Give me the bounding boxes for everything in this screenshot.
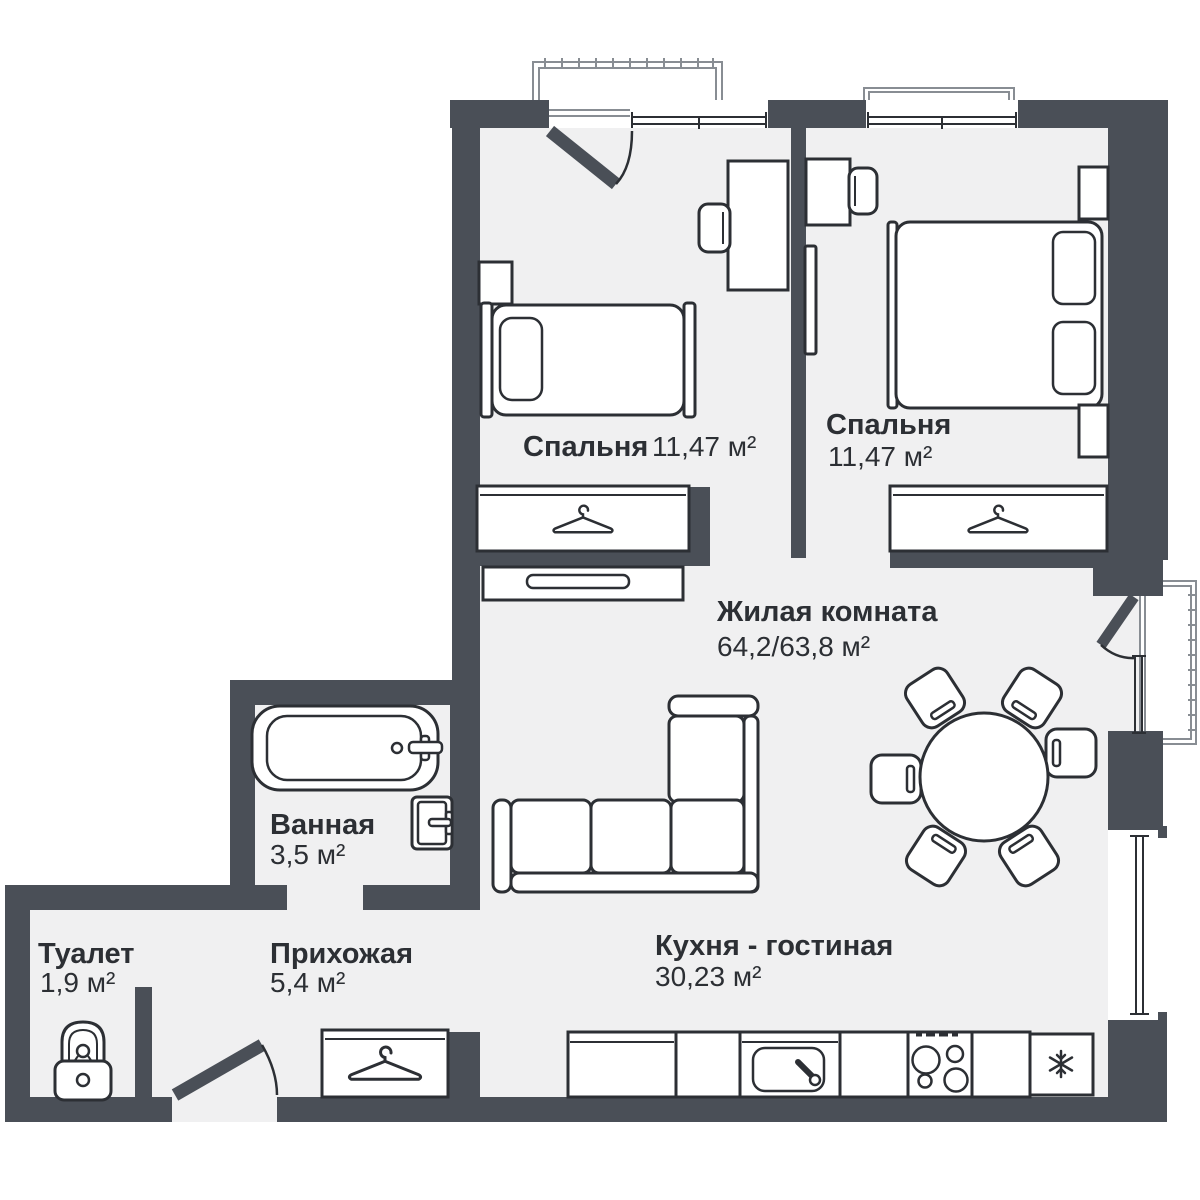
kitchen-living-area: 30,23 м² — [655, 961, 761, 992]
burner-icon — [945, 1069, 968, 1092]
window-bedroom-2 — [866, 100, 1018, 129]
wall-bathroom-bottom-left — [230, 885, 287, 910]
wall-right-mid — [1108, 731, 1163, 830]
bedroom-1-name: Спальня — [523, 431, 648, 463]
wall-bedroom1-left — [452, 100, 480, 705]
entrance-doorway-floor — [172, 1097, 277, 1122]
wall-bathroom-top — [230, 680, 480, 705]
wall-right-upper — [1108, 128, 1168, 560]
wall-bathroom-right — [450, 680, 480, 910]
fridge — [1030, 1034, 1093, 1095]
wardrobe — [322, 1030, 448, 1097]
floor-plan-page: Спальня 11,47 м² Спальня 11,47 м² Жилая … — [0, 0, 1200, 1200]
kitchen-living-name: Кухня - гостиная — [655, 930, 893, 962]
wardrobe — [477, 486, 689, 551]
floor-plan: Спальня 11,47 м² Спальня 11,47 м² Жилая … — [0, 0, 1200, 1200]
double-bed — [888, 222, 1102, 408]
dining-chair — [1046, 729, 1096, 777]
kitchen-sink-unit — [740, 1032, 840, 1097]
kitchen-cabinet — [840, 1032, 908, 1097]
hallway-name: Прихожая — [270, 938, 413, 970]
nightstand — [1079, 167, 1108, 219]
tv-stand — [483, 567, 683, 600]
kitchen-cabinet — [676, 1032, 740, 1097]
wall-bedroom2-bottom — [890, 550, 1108, 568]
toilet-name: Туалет — [38, 938, 134, 970]
desk-chair — [699, 204, 730, 252]
bedroom-2-area: 11,47 м² — [828, 441, 932, 472]
wall-top-2 — [768, 100, 866, 128]
burner-icon — [947, 1046, 963, 1062]
hallway-area: 5,4 м² — [270, 967, 345, 998]
pillow — [1053, 322, 1095, 394]
living-room-name: Жилая комната — [716, 596, 938, 628]
nightstand — [479, 262, 512, 304]
bathroom-name: Ванная — [270, 809, 375, 841]
balcony-right — [1140, 581, 1197, 744]
stove — [908, 1032, 972, 1097]
wall-toilet-left — [5, 885, 30, 1122]
living-room-area: 64,2/63,8 м² — [717, 631, 870, 662]
window-bedroom-1 — [630, 100, 768, 129]
kitchen-cabinet — [972, 1032, 1030, 1097]
wall-tv-icon — [805, 246, 816, 354]
wall-top-3 — [1018, 100, 1168, 128]
kitchen-cabinet — [568, 1032, 676, 1097]
desk — [728, 161, 788, 290]
toilet-furniture — [55, 1022, 111, 1100]
kitchen-furniture — [568, 1032, 1093, 1097]
bathroom-area: 3,5 м² — [270, 839, 345, 870]
bathtub — [252, 706, 442, 790]
desk — [806, 159, 850, 225]
tv-icon — [527, 575, 629, 588]
hallway-furniture — [322, 1030, 448, 1097]
bedroom-2-name: Спальня — [826, 409, 951, 441]
bedroom-1-area: 11,47 м² — [652, 431, 756, 462]
wardrobe — [890, 486, 1107, 551]
bathroom-door-icon — [412, 797, 452, 849]
single-bed — [481, 303, 695, 417]
pillow — [1053, 232, 1095, 304]
burner-icon — [919, 1075, 932, 1088]
wall-bathroom-bottom-right — [363, 885, 480, 910]
pillow — [500, 318, 542, 400]
bathroom-doorway-floor — [287, 885, 363, 910]
dining-table — [920, 713, 1048, 841]
burner-icon — [913, 1047, 940, 1074]
wall-toilet-top — [5, 885, 230, 910]
wall-bottom — [277, 1097, 1167, 1122]
wall-bathroom-left — [230, 680, 255, 910]
window-kitchen — [1108, 826, 1167, 1024]
wall-toilet-partition — [135, 987, 152, 1097]
toilet-area: 1,9 м² — [40, 967, 115, 998]
nightstand — [1079, 405, 1108, 457]
wc-icon — [55, 1022, 111, 1100]
wall-bedroom1-pillar — [688, 487, 710, 566]
wall-kitchen-pillar — [448, 1032, 480, 1122]
drain-icon — [392, 743, 402, 753]
desk-chair — [849, 168, 877, 214]
dining-chair — [871, 755, 921, 803]
